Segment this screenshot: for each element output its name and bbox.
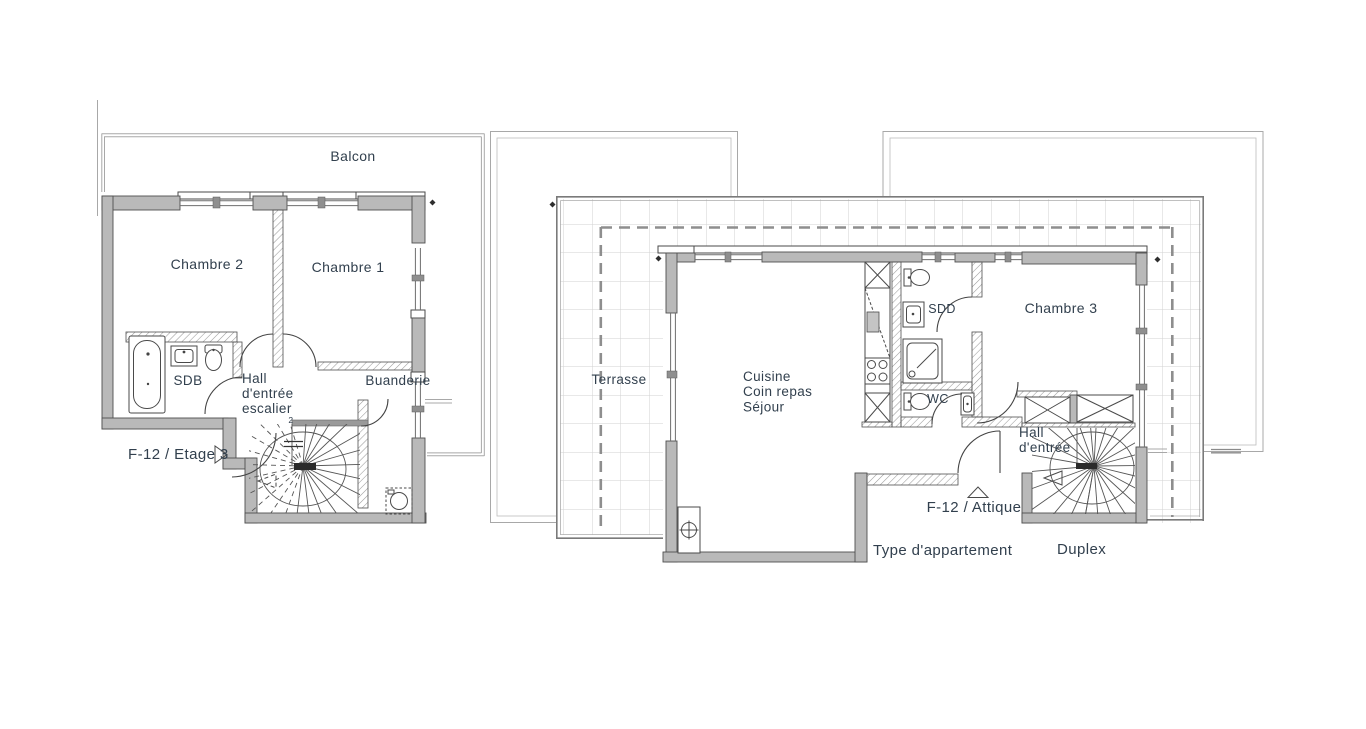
label-sejour-3: Séjour [743,400,785,415]
label-stair-count: 2 [288,415,293,425]
label-wc: WC [927,392,949,406]
label-chambre2: Chambre 2 [171,256,244,272]
toilet-sdd [904,269,930,286]
washbasin-sdb [171,346,197,366]
label-sejour-2: Coin repas [743,384,812,399]
label-plan-attique: F-12 / Attique [927,499,1022,516]
bathtub [129,336,165,413]
label-sdd: SDD [928,302,956,316]
structural-column [678,507,700,553]
washbasin-wc [961,393,974,415]
label-duplex: Duplex [1057,541,1106,558]
label-buanderie: Buanderie [365,373,430,388]
shower-tray [903,339,942,383]
label-balcon: Balcon [330,148,375,164]
floor-plan-drawing: Balcon Chambre 2 Chambre 1 SDB Hall d'en… [0,0,1366,729]
plan-etage-3: Balcon Chambre 2 Chambre 1 SDB Hall d'en… [98,100,485,560]
label-terrasse: Terrasse [592,372,647,387]
terrace-mask-2 [1022,523,1204,538]
survey-marker [550,202,556,208]
label-hall-attique-2: d'entrée [1019,440,1071,455]
label-chambre1: Chambre 1 [312,259,385,275]
toilet-sdb [205,345,222,371]
label-hall-attique-1: Hall [1019,425,1044,440]
apartment-type-caption: Type d'appartement Duplex [873,541,1106,559]
lintel-lines [425,400,452,404]
label-hall-etage-1: Hall [242,371,267,386]
label-type-appartement: Type d'appartement [873,542,1013,559]
label-chambre3: Chambre 3 [1025,300,1098,316]
floor-plan-sheet: Balcon Chambre 2 Chambre 1 SDB Hall d'en… [0,0,1366,729]
label-sdb: SDB [174,373,203,388]
label-hall-etage-3: escalier [242,401,292,416]
toilet-wc [904,393,930,410]
stove [865,358,890,384]
label-plan-etage: F-12 / Etage 3 [128,446,229,463]
label-hall-etage-2: d'entrée [242,386,294,401]
washbasin-sdd [903,302,924,327]
plan-attique: Terrasse Cuisine Coin repas Séjour SDD C… [550,196,1242,562]
survey-marker [430,200,436,206]
label-sejour-1: Cuisine [743,369,791,384]
